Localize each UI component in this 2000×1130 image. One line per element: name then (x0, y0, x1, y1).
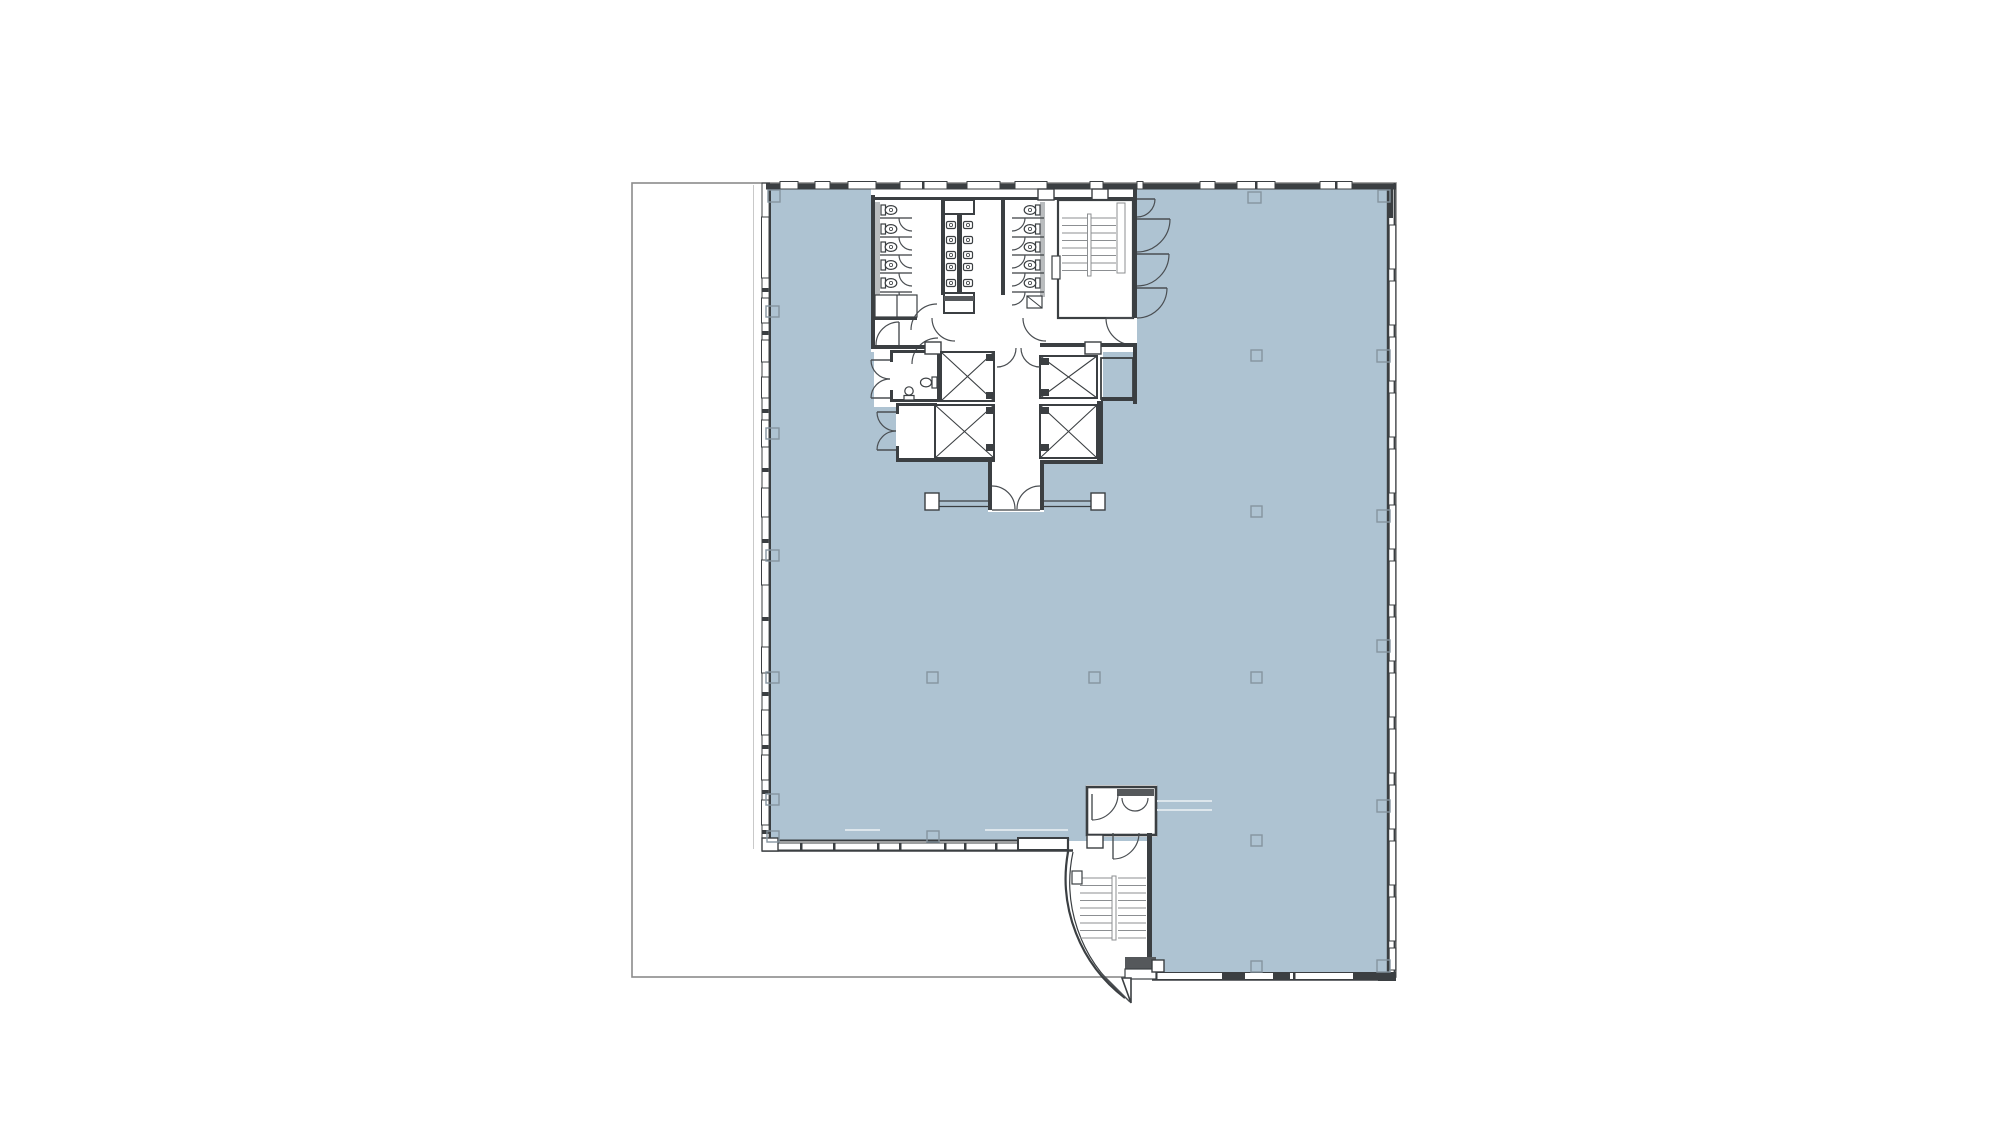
east-window-wall (1387, 183, 1396, 981)
floor-plan-canvas (0, 0, 2000, 1130)
west-window-wall (762, 183, 770, 851)
stair-door-leaf (1052, 256, 1060, 279)
floor-plan-drawing (0, 0, 2000, 1125)
elevator-2 (1040, 356, 1097, 398)
vestibule-header (1117, 789, 1154, 796)
janitor-closet (875, 295, 917, 317)
southwest-corner-pier (762, 838, 778, 851)
elevator-4 (1040, 405, 1097, 458)
elevator-3 (935, 405, 995, 458)
toilet-bowl (921, 378, 932, 387)
stair-rail (1088, 214, 1092, 276)
core-west-wall (871, 195, 875, 345)
stair-east-wall (1147, 833, 1152, 973)
fin-end-column-east (1091, 493, 1105, 510)
tile-wall-strip (1040, 202, 1045, 297)
wall-lav-right (1001, 200, 1005, 295)
duct-shaft-north (944, 200, 974, 214)
stair-guard (1117, 203, 1125, 273)
stair-rail (1112, 876, 1116, 940)
plumbing-wall (957, 215, 962, 294)
stair-landing-step (1072, 871, 1082, 884)
south-window-wall-lower (1152, 972, 1396, 981)
elevator-1 (941, 352, 995, 401)
wc-sink (905, 387, 913, 395)
lobby-corridor-stub (988, 457, 1044, 512)
fin-end-column-west (925, 493, 939, 510)
toilet-tank (932, 377, 937, 388)
south-window-wall-main (762, 838, 1073, 851)
south-wall-solid-panel (1018, 838, 1068, 850)
stair-column (1087, 835, 1103, 848)
